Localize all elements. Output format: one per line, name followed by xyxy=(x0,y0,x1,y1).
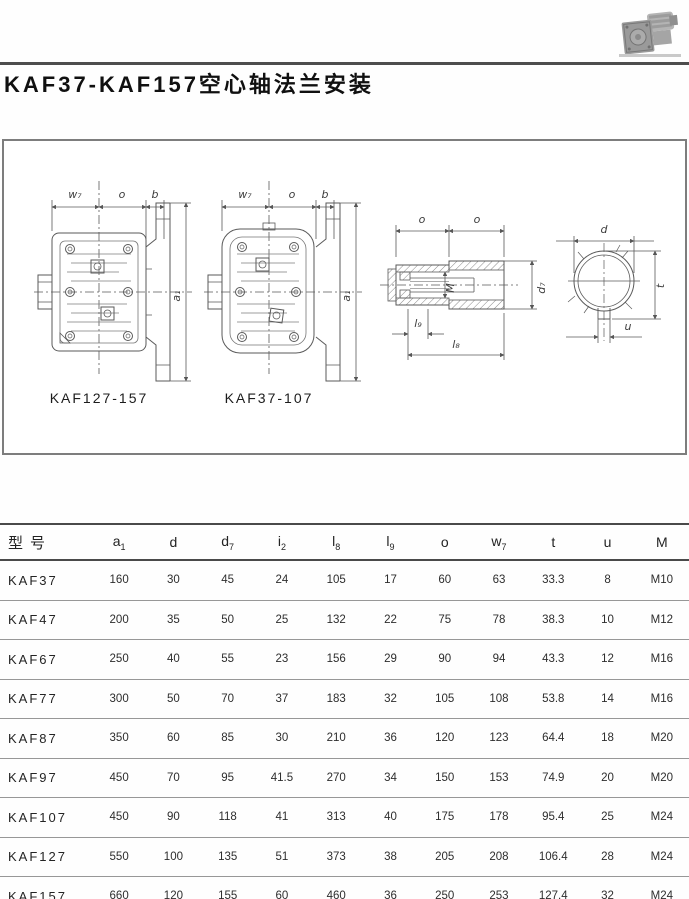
value-cell: M24 xyxy=(635,837,689,877)
front-view-kaf127-157: w₇ o b xyxy=(34,181,192,406)
value-cell: 118 xyxy=(201,798,255,838)
model-cell: KAF157 xyxy=(0,877,92,899)
value-cell: 25 xyxy=(255,600,309,640)
value-cell: 95 xyxy=(201,758,255,798)
spec-table-header-row: 型号a1dd7i2l8l9ow7tuM xyxy=(0,524,689,560)
value-cell: 210 xyxy=(309,719,363,759)
value-cell: 14 xyxy=(580,679,634,719)
value-cell: 45 xyxy=(201,560,255,600)
table-row: KAF1275501001355137338205208106.428M24 xyxy=(0,837,689,877)
value-cell: 135 xyxy=(201,837,255,877)
dim-label-a1: a₁ xyxy=(170,290,183,301)
value-cell: 37 xyxy=(255,679,309,719)
hollow-shaft-section: M o o d₇ l₉ l₈ xyxy=(380,213,548,360)
column-header: l8 xyxy=(309,524,363,560)
variant-label-right: KAF37-107 xyxy=(225,390,314,406)
value-cell: 300 xyxy=(92,679,146,719)
value-cell: 35 xyxy=(146,600,200,640)
value-cell: 38.3 xyxy=(526,600,580,640)
value-cell: 660 xyxy=(92,877,146,899)
technical-drawing: w₇ o b xyxy=(4,141,685,453)
value-cell: 350 xyxy=(92,719,146,759)
value-cell: M16 xyxy=(635,640,689,680)
value-cell: M20 xyxy=(635,719,689,759)
column-header: u xyxy=(580,524,634,560)
column-header-model: 型号 xyxy=(0,524,92,560)
value-cell: 460 xyxy=(309,877,363,899)
dim-label-a1-2: a₁ xyxy=(340,290,353,301)
value-cell: 450 xyxy=(92,798,146,838)
value-cell: 17 xyxy=(363,560,417,600)
model-cell: KAF107 xyxy=(0,798,92,838)
value-cell: 70 xyxy=(201,679,255,719)
table-row: KAF3716030452410517606333.38M10 xyxy=(0,560,689,600)
column-header: w7 xyxy=(472,524,526,560)
dim-label-o-2: o xyxy=(289,188,296,201)
value-cell: M16 xyxy=(635,679,689,719)
value-cell: 85 xyxy=(201,719,255,759)
value-cell: 120 xyxy=(146,877,200,899)
column-header: o xyxy=(418,524,472,560)
column-header: d xyxy=(146,524,200,560)
column-header: d7 xyxy=(201,524,255,560)
table-row: KAF10745090118413134017517895.425M24 xyxy=(0,798,689,838)
model-cell: KAF127 xyxy=(0,837,92,877)
model-cell: KAF77 xyxy=(0,679,92,719)
value-cell: 55 xyxy=(201,640,255,680)
value-cell: 75 xyxy=(418,600,472,640)
value-cell: 41 xyxy=(255,798,309,838)
value-cell: 18 xyxy=(580,719,634,759)
value-cell: 313 xyxy=(309,798,363,838)
table-row: KAF773005070371833210510853.814M16 xyxy=(0,679,689,719)
value-cell: 108 xyxy=(472,679,526,719)
dim-label-o: o xyxy=(119,188,126,201)
value-cell: 208 xyxy=(472,837,526,877)
value-cell: 53.8 xyxy=(526,679,580,719)
value-cell: 22 xyxy=(363,600,417,640)
value-cell: 160 xyxy=(92,560,146,600)
value-cell: 63 xyxy=(472,560,526,600)
spec-table: 型号a1dd7i2l8l9ow7tuM KAF37160304524105176… xyxy=(0,523,689,899)
table-row: KAF97450709541.52703415015374.920M20 xyxy=(0,758,689,798)
value-cell: M10 xyxy=(635,560,689,600)
value-cell: M12 xyxy=(635,600,689,640)
column-header: M xyxy=(635,524,689,560)
value-cell: 64.4 xyxy=(526,719,580,759)
value-cell: 50 xyxy=(146,679,200,719)
dim-label-l8: l₈ xyxy=(452,338,460,351)
value-cell: 33.3 xyxy=(526,560,580,600)
value-cell: 10 xyxy=(580,600,634,640)
value-cell: 550 xyxy=(92,837,146,877)
column-header: i2 xyxy=(255,524,309,560)
dim-label-d: d xyxy=(601,223,609,236)
value-cell: 205 xyxy=(418,837,472,877)
value-cell: 32 xyxy=(363,679,417,719)
value-cell: 106.4 xyxy=(526,837,580,877)
value-cell: M20 xyxy=(635,758,689,798)
value-cell: 23 xyxy=(255,640,309,680)
spec-table-body: KAF3716030452410517606333.38M10KAF472003… xyxy=(0,560,689,899)
value-cell: 250 xyxy=(418,877,472,899)
value-cell: 38 xyxy=(363,837,417,877)
catalog-page: KAF37-KAF157空心轴法兰安装 w₇ xyxy=(0,0,689,899)
front-view-kaf37-107: w₇ o b xyxy=(204,181,362,406)
value-cell: 123 xyxy=(472,719,526,759)
value-cell: 373 xyxy=(309,837,363,877)
value-cell: 20 xyxy=(580,758,634,798)
dim-label-l9: l₉ xyxy=(414,317,422,330)
title-divider xyxy=(0,62,689,65)
table-row: KAF873506085302103612012364.418M20 xyxy=(0,719,689,759)
model-cell: KAF97 xyxy=(0,758,92,798)
value-cell: 36 xyxy=(363,877,417,899)
value-cell: 51 xyxy=(255,837,309,877)
value-cell: 74.9 xyxy=(526,758,580,798)
value-cell: 100 xyxy=(146,837,200,877)
value-cell: 60 xyxy=(418,560,472,600)
value-cell: 50 xyxy=(201,600,255,640)
value-cell: 41.5 xyxy=(255,758,309,798)
value-cell: 70 xyxy=(146,758,200,798)
value-cell: 29 xyxy=(363,640,417,680)
model-cell: KAF87 xyxy=(0,719,92,759)
dim-label-d7: d₇ xyxy=(535,282,548,294)
value-cell: 183 xyxy=(309,679,363,719)
page-title: KAF37-KAF157空心轴法兰安装 xyxy=(4,67,374,99)
value-cell: 28 xyxy=(580,837,634,877)
dim-label-w7-2: w₇ xyxy=(238,188,252,201)
value-cell: 8 xyxy=(580,560,634,600)
table-row: KAF4720035502513222757838.310M12 xyxy=(0,600,689,640)
value-cell: 132 xyxy=(309,600,363,640)
value-cell: 60 xyxy=(146,719,200,759)
shaft-cross-section: d t u xyxy=(556,223,667,343)
value-cell: 250 xyxy=(92,640,146,680)
value-cell: 153 xyxy=(472,758,526,798)
value-cell: M24 xyxy=(635,877,689,899)
dim-label-t: t xyxy=(654,283,667,288)
value-cell: 30 xyxy=(146,560,200,600)
value-cell: 36 xyxy=(363,719,417,759)
dim-label-b: b xyxy=(152,188,159,201)
value-cell: 32 xyxy=(580,877,634,899)
value-cell: 450 xyxy=(92,758,146,798)
value-cell: 175 xyxy=(418,798,472,838)
value-cell: 95.4 xyxy=(526,798,580,838)
value-cell: 90 xyxy=(146,798,200,838)
value-cell: 105 xyxy=(309,560,363,600)
value-cell: 25 xyxy=(580,798,634,838)
dim-label-w7: w₇ xyxy=(68,188,82,201)
value-cell: 178 xyxy=(472,798,526,838)
value-cell: 40 xyxy=(363,798,417,838)
drawing-panel: w₇ o b xyxy=(2,139,687,455)
value-cell: 34 xyxy=(363,758,417,798)
model-cell: KAF37 xyxy=(0,560,92,600)
value-cell: 12 xyxy=(580,640,634,680)
value-cell: 156 xyxy=(309,640,363,680)
value-cell: 105 xyxy=(418,679,472,719)
column-header: a1 xyxy=(92,524,146,560)
value-cell: 94 xyxy=(472,640,526,680)
value-cell: 30 xyxy=(255,719,309,759)
value-cell: 120 xyxy=(418,719,472,759)
value-cell: 78 xyxy=(472,600,526,640)
dim-label-o-4: o xyxy=(474,213,481,226)
value-cell: 60 xyxy=(255,877,309,899)
gearmotor-photo xyxy=(611,6,685,62)
value-cell: 270 xyxy=(309,758,363,798)
model-cell: KAF47 xyxy=(0,600,92,640)
value-cell: 253 xyxy=(472,877,526,899)
table-row: KAF6725040552315629909443.312M16 xyxy=(0,640,689,680)
dim-label-M: M xyxy=(444,283,457,293)
variant-label-left: KAF127-157 xyxy=(50,390,149,406)
dim-label-u: u xyxy=(625,320,632,333)
value-cell: 150 xyxy=(418,758,472,798)
value-cell: 43.3 xyxy=(526,640,580,680)
value-cell: M24 xyxy=(635,798,689,838)
value-cell: 24 xyxy=(255,560,309,600)
value-cell: 127.4 xyxy=(526,877,580,899)
value-cell: 90 xyxy=(418,640,472,680)
model-cell: KAF67 xyxy=(0,640,92,680)
column-header: t xyxy=(526,524,580,560)
value-cell: 200 xyxy=(92,600,146,640)
table-row: KAF1576601201556046036250253127.432M24 xyxy=(0,877,689,899)
value-cell: 40 xyxy=(146,640,200,680)
column-header: l9 xyxy=(363,524,417,560)
dim-label-o-3: o xyxy=(419,213,426,226)
value-cell: 155 xyxy=(201,877,255,899)
dim-label-b-2: b xyxy=(322,188,329,201)
